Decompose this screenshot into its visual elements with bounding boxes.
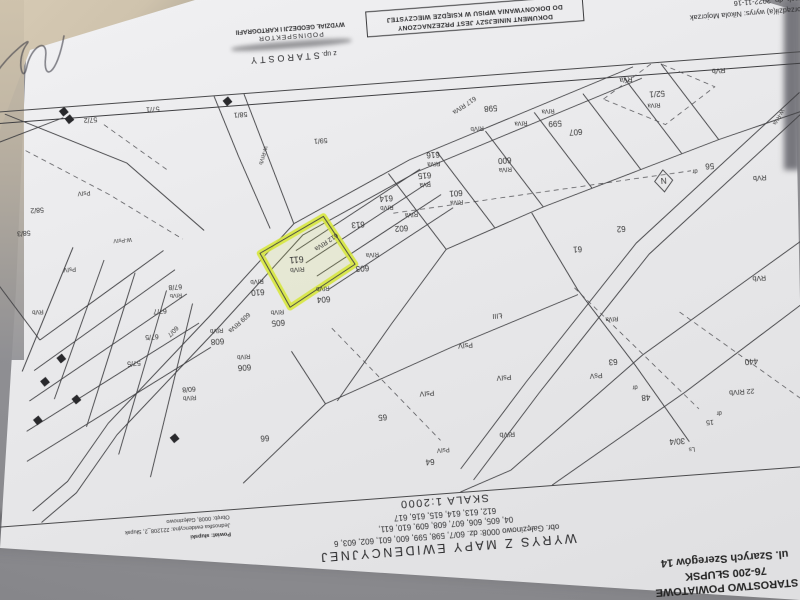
building-symbol: [223, 96, 233, 106]
parcel-label: RIVa: [365, 250, 379, 257]
parcel-boundary-line: [20, 323, 207, 431]
parcel-label: dr: [632, 383, 638, 389]
parcel-label: PsIV: [437, 446, 450, 453]
parcel-label: RIVa: [449, 198, 463, 205]
parcel-boundary-line: [661, 60, 719, 144]
parcel-label: 66: [260, 433, 270, 443]
parcel-label: 613: [351, 219, 366, 229]
parcel-label: RIVb: [315, 284, 329, 291]
parcel-label: 63: [608, 357, 618, 367]
parcel-label: 58/2: [30, 205, 44, 213]
parcel-label: 617 RIVa: [451, 95, 477, 116]
parcel-label: 598: [483, 103, 498, 113]
parcel-label: 52/1: [648, 89, 665, 99]
parcel-label: RIVa: [404, 210, 418, 217]
highlighted-parcel-611: [258, 214, 358, 309]
parcel-boundary-line: [244, 91, 294, 227]
parcel-boundary-line: [107, 290, 179, 454]
parcel-label: RIVb: [270, 308, 284, 315]
parcel-label: 30/4: [669, 436, 686, 446]
parcel-boundary-line: [318, 110, 800, 401]
building-symbol: [59, 107, 69, 117]
building-symbol: [56, 354, 66, 364]
parcel-label: 61: [572, 244, 582, 254]
parcel-label: dr: [716, 409, 722, 415]
parcel-label: RVb: [753, 173, 767, 181]
parcel-boundary-line: [0, 118, 66, 155]
parcel-label: RVb: [31, 308, 44, 315]
parcel-label: RIVa: [605, 315, 619, 322]
cadastral-document: N611RIVb612 RIVa613614RIVb615RVa616RIVa6…: [0, 0, 800, 600]
parcel-label: 15: [706, 418, 714, 426]
land-register-notice-box: DOKUMENT NINIEJSZY JEST PRZEZNACZONY DO …: [365, 0, 584, 37]
map-svg: N611RIVb612 RIVa613614RIVb615RVa616RIVa6…: [0, 52, 800, 527]
parcel-label: ŁIII: [492, 311, 502, 319]
parcel-label: W-RIVb: [257, 145, 268, 165]
parcel-label: 67/8: [168, 282, 182, 290]
parcel-label: 616: [426, 150, 441, 160]
signature-scribble: [0, 25, 78, 92]
classification-dashed-line: [392, 171, 693, 213]
parcel-label: 58/1: [233, 110, 247, 118]
parcel-label: 614: [379, 193, 394, 203]
parcel-label: Ls: [688, 445, 695, 451]
parcel-label: RVa: [619, 75, 633, 83]
parcel-label: PsIV: [77, 189, 90, 196]
parcel-label: 615: [417, 170, 432, 180]
parcel-label: 67/7: [153, 306, 167, 314]
parcel-label: 56: [704, 161, 714, 171]
parcel-label: 58/3: [17, 228, 31, 236]
north-arrow-label: N: [660, 176, 667, 185]
parcel-label: 602: [394, 223, 409, 233]
parcel-label: RVb: [752, 273, 766, 281]
classification-dashed-line: [574, 279, 698, 417]
parcel-label: 606: [237, 362, 252, 372]
parcel-label: 611: [289, 254, 304, 265]
parcel-label: 59/1: [313, 136, 327, 144]
parcel-label: W-PsIV: [113, 236, 132, 243]
parcel-label: PsV: [589, 371, 603, 379]
parcel-label: RIVa: [541, 107, 555, 114]
parcel-label: PsIV: [419, 389, 435, 397]
parcel-label: RIVa: [514, 119, 528, 126]
parcel-label: PsIV: [496, 373, 512, 381]
issuing-office-block: STAROSTWO POWIATOWE 76-200 SŁUPSK ul. Sz…: [617, 543, 800, 600]
parcel-label: 64: [425, 457, 435, 467]
map-frame: N611RIVb612 RIVa613614RIVb615RVa616RIVa6…: [0, 51, 800, 528]
parcel-boundary-line: [583, 90, 641, 174]
parcel-label: 60/8: [182, 385, 196, 393]
stamp-authority: STAROSTY: [248, 50, 320, 65]
parcel-boundary-line: [532, 202, 690, 452]
photo-background: N611RIVb612 RIVa613614RIVb615RVa616RIVa6…: [0, 0, 800, 600]
parcel-boundary-line: [22, 294, 194, 401]
parcel-label: RIVb: [209, 326, 223, 333]
parcel-boundary-line: [534, 108, 592, 192]
parcel-label: RIVb: [379, 203, 393, 210]
parcel-boundary-line: [34, 251, 170, 341]
parcel-label: RIVa: [498, 165, 512, 172]
parcel-label: RIVb: [499, 430, 515, 438]
parcel-label: 57/1: [146, 104, 160, 112]
parcel-label: 607: [568, 127, 583, 137]
building-symbol: [33, 416, 43, 426]
parcel-label: dr: [692, 167, 698, 173]
parcel-label: 67/5: [145, 332, 159, 340]
parcel-label: RIVb: [170, 291, 183, 298]
building-symbol: [64, 114, 74, 124]
classification-dashed-line: [26, 139, 183, 250]
parcel-boundary-line: [437, 148, 495, 232]
parcel-label: 605: [271, 318, 286, 328]
classification-dashed-line: [332, 321, 441, 448]
parcel-boundary-line: [75, 273, 146, 427]
parcel-label: 608: [210, 336, 225, 346]
parcel-label: RIVb: [182, 394, 196, 401]
classification-dashed-line: [104, 120, 168, 174]
parcel-label: RIVb: [289, 265, 304, 273]
parcel-label: RIVb: [236, 352, 250, 359]
building-symbol: [71, 395, 81, 405]
parcel-boundary-line: [12, 78, 672, 522]
official-stamp: z up. STAROSTY PODINSPEKTOR WYDZIAŁ GEOD…: [206, 17, 376, 68]
parcel-label: RIVb: [470, 124, 484, 131]
building-symbol: [170, 433, 180, 443]
parcel-label: 600: [497, 155, 512, 165]
building-symbol: [40, 377, 50, 387]
parcel-label: 604: [316, 294, 331, 304]
parcel-label: PsIV: [457, 341, 473, 349]
parcel-label: RVb: [711, 66, 725, 74]
parcel-boundary-line: [3, 67, 663, 511]
parcel-label: 65: [377, 412, 387, 422]
date-block: Sporządził(a) wyrys: Nikola Mojcrzak Słu…: [637, 0, 800, 27]
parcel-boundary-line: [0, 246, 40, 344]
parcel-boundary-line: [19, 347, 218, 461]
parcel-label: PsIV: [63, 265, 76, 272]
parcel-boundary-line: [27, 270, 181, 371]
parcel-boundary-line: [291, 349, 325, 406]
parcel-label: 599: [548, 118, 563, 128]
parcel-label: 48: [641, 392, 651, 402]
stamp-pre: z up.: [321, 49, 337, 57]
parcel-boundary-line: [0, 63, 800, 126]
parcel-label: 57/2: [83, 115, 97, 123]
parcel-boundary-line: [624, 74, 682, 158]
parcel-label: RIVb: [249, 277, 263, 284]
parcel-boundary-line: [5, 100, 204, 245]
parcel-boundary-line: [539, 292, 800, 486]
parcel-label: RVa: [419, 180, 431, 187]
parcel-label: 57/5: [127, 359, 141, 367]
parcel-label: 601: [448, 188, 463, 198]
parcel-label: 440: [744, 356, 759, 366]
parcel-label: RIVa: [426, 160, 440, 167]
parcel-label: 610: [250, 287, 265, 297]
parcel-label: 603: [355, 263, 370, 273]
parcel-label: 62: [616, 224, 626, 234]
parcel-label: RIVa: [647, 101, 661, 108]
parcel-label: 22 RIVb: [729, 387, 755, 396]
